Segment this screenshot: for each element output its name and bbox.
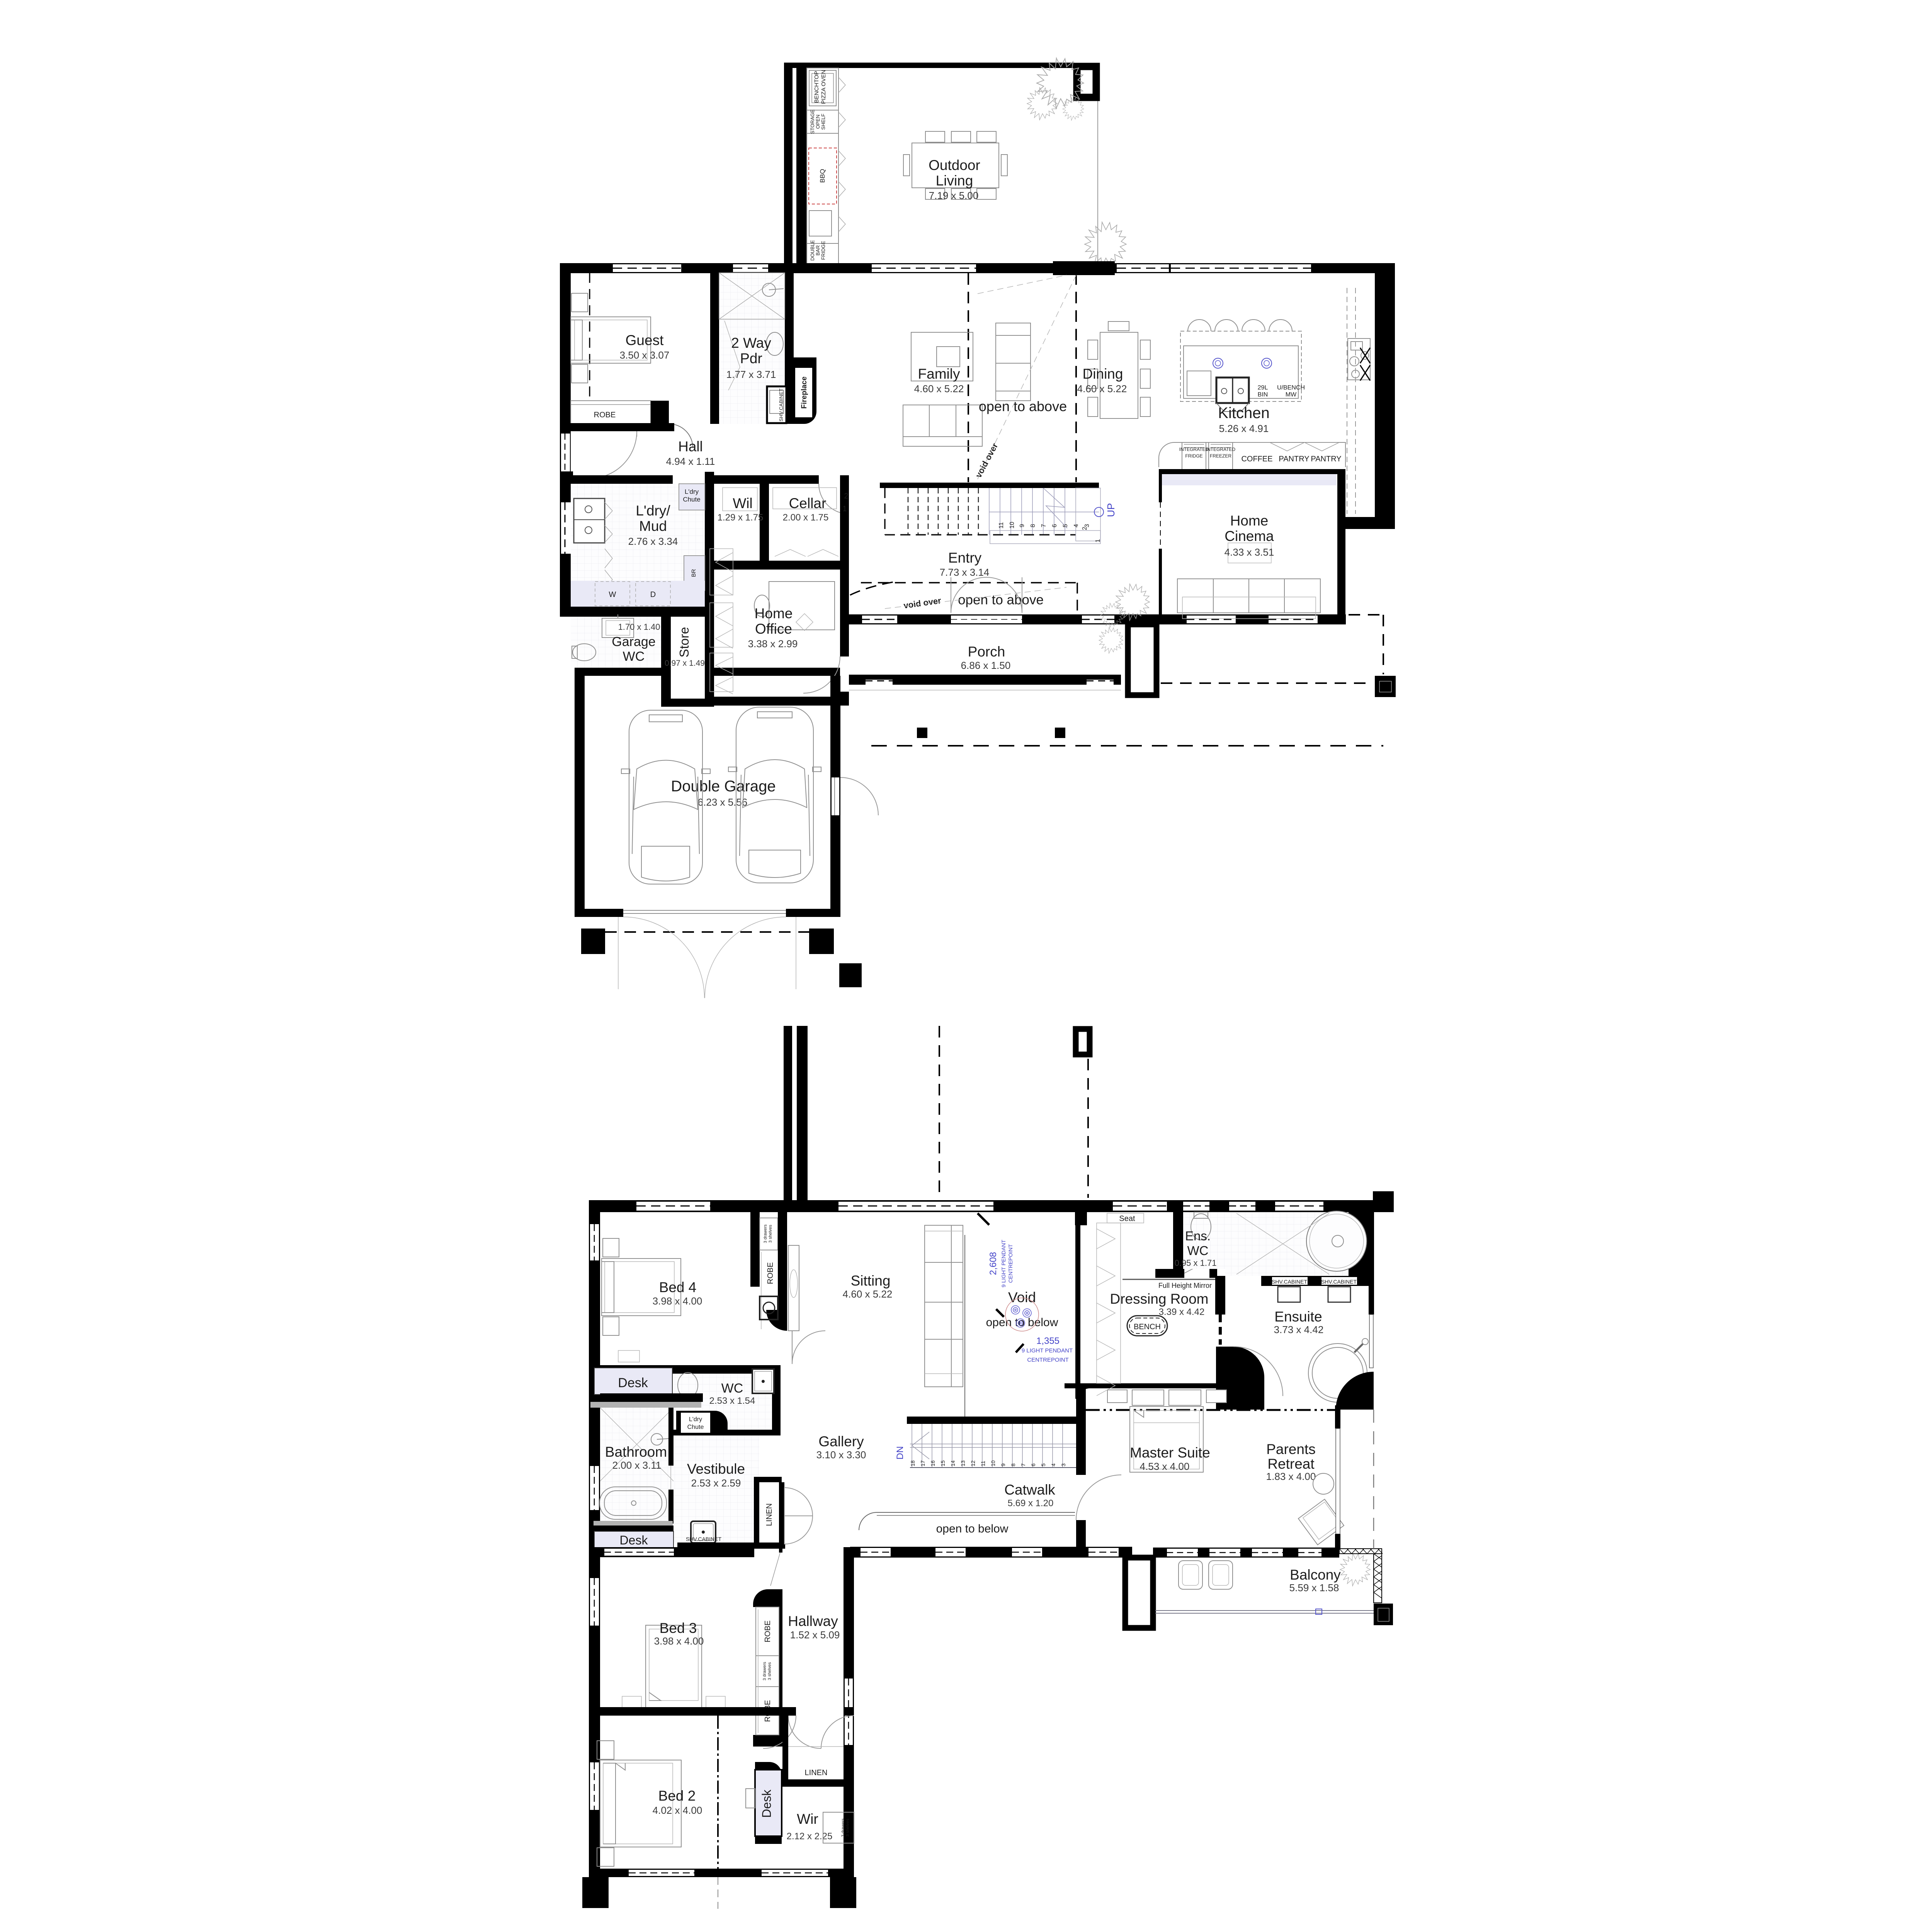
svg-text:Cinema: Cinema [1225, 528, 1274, 544]
svg-text:9: 9 [1019, 524, 1026, 527]
svg-text:2.00 x 3.11: 2.00 x 3.11 [612, 1459, 662, 1471]
svg-text:open to above: open to above [979, 398, 1067, 414]
svg-text:10: 10 [990, 1460, 996, 1466]
svg-text:12: 12 [970, 1460, 976, 1466]
svg-text:4.33 x 3.51: 4.33 x 3.51 [1225, 546, 1274, 558]
svg-text:Cellar: Cellar [789, 495, 827, 511]
svg-text:FRIDGE: FRIDGE [820, 241, 826, 260]
svg-text:1.29 x 1.75: 1.29 x 1.75 [718, 512, 764, 523]
svg-text:13: 13 [960, 1460, 966, 1466]
svg-text:INTEGRATED: INTEGRATED [1179, 447, 1209, 452]
svg-text:Pdr: Pdr [740, 350, 762, 366]
svg-text:Full Height Mirror: Full Height Mirror [1158, 1282, 1212, 1289]
svg-text:7.19 x 5.00: 7.19 x 5.00 [929, 190, 979, 201]
svg-text:Office: Office [755, 621, 792, 637]
svg-text:15: 15 [940, 1460, 946, 1466]
svg-text:0.97 x 1.49: 0.97 x 1.49 [665, 659, 705, 668]
svg-text:6: 6 [1051, 524, 1058, 527]
svg-text:9 LIGHT PENDANT: 9 LIGHT PENDANT [1000, 1240, 1007, 1287]
svg-text:BAR: BAR [815, 245, 821, 256]
svg-text:4.53 x 4.00: 4.53 x 4.00 [1140, 1461, 1190, 1472]
svg-text:Wir: Wir [797, 1811, 818, 1827]
svg-text:Dining: Dining [1083, 366, 1123, 382]
svg-text:4.94 x 1.11: 4.94 x 1.11 [666, 456, 715, 467]
svg-text:WC: WC [623, 649, 645, 664]
svg-text:Store: Store [677, 627, 691, 658]
svg-text:Guest: Guest [626, 332, 664, 348]
svg-text:16: 16 [930, 1460, 936, 1466]
svg-text:Family: Family [918, 366, 960, 382]
svg-text:SHV.CABINET: SHV.CABINET [778, 388, 784, 422]
svg-text:4: 4 [1073, 524, 1080, 527]
svg-text:4.60 x 5.22: 4.60 x 5.22 [1077, 383, 1127, 395]
svg-text:5.59 x 1.58: 5.59 x 1.58 [1289, 1582, 1339, 1594]
svg-text:7: 7 [1041, 524, 1047, 527]
svg-text:3.98 x 4.00: 3.98 x 4.00 [654, 1635, 704, 1647]
svg-text:MW: MW [1286, 391, 1297, 398]
svg-text:LINEN: LINEN [805, 1769, 828, 1777]
svg-text:Kitchen: Kitchen [1218, 405, 1269, 422]
svg-text:ROBE: ROBE [594, 411, 616, 419]
svg-text:9: 9 [1000, 1463, 1006, 1466]
svg-text:1.70 x 1.40: 1.70 x 1.40 [618, 622, 660, 632]
svg-text:Living: Living [936, 173, 973, 189]
svg-text:5: 5 [1040, 1463, 1046, 1466]
svg-text:7: 7 [1020, 1463, 1026, 1466]
svg-text:1,355: 1,355 [1036, 1336, 1060, 1346]
svg-text:1: 1 [1095, 539, 1101, 543]
svg-text:SHV.CABINET: SHV.CABINET [1321, 1279, 1357, 1285]
svg-text:LINEN: LINEN [765, 1503, 774, 1526]
svg-text:CENTREPOINT: CENTREPOINT [1027, 1357, 1069, 1363]
svg-text:SHV.CABINET: SHV.CABINET [686, 1536, 722, 1542]
svg-text:Desk: Desk [618, 1376, 648, 1390]
svg-text:SHV.CABINET: SHV.CABINET [1272, 1279, 1308, 1285]
svg-text:3 drawers: 3 drawers [762, 1662, 767, 1680]
svg-text:Parents: Parents [1266, 1441, 1316, 1457]
svg-text:3.10 x 3.30: 3.10 x 3.30 [816, 1449, 866, 1461]
svg-text:3.50 x 3.07: 3.50 x 3.07 [620, 349, 670, 361]
svg-text:2.76 x 3.34: 2.76 x 3.34 [628, 536, 678, 547]
svg-text:5.69 x 1.20: 5.69 x 1.20 [1008, 1498, 1054, 1509]
svg-text:Double Garage: Double Garage [671, 778, 776, 795]
svg-text:1.83 x 4.00: 1.83 x 4.00 [1266, 1471, 1316, 1482]
svg-text:7.73 x 3.14: 7.73 x 3.14 [940, 566, 990, 578]
svg-text:4.60 x 5.22: 4.60 x 5.22 [914, 383, 964, 395]
svg-text:Outdoor: Outdoor [929, 157, 980, 173]
svg-text:CENTREPOINT: CENTREPOINT [1007, 1244, 1014, 1283]
svg-text:2 Way: 2 Way [731, 335, 771, 351]
svg-text:Chute: Chute [683, 496, 700, 503]
svg-text:4.02 x 4.00: 4.02 x 4.00 [653, 1804, 702, 1816]
svg-text:Ens.: Ens. [1185, 1229, 1211, 1243]
svg-text:Entry: Entry [948, 550, 982, 566]
svg-text:Bed 4: Bed 4 [659, 1279, 697, 1295]
svg-text:Fireplace: Fireplace [800, 376, 808, 408]
svg-text:Mud: Mud [639, 518, 667, 534]
svg-text:2: 2 [1082, 527, 1088, 530]
svg-text:Vestibule: Vestibule [687, 1461, 745, 1477]
svg-text:2.53 x 2.59: 2.53 x 2.59 [691, 1477, 741, 1489]
svg-text:Catwalk: Catwalk [1004, 1482, 1055, 1498]
svg-text:1: 1 [842, 505, 847, 513]
svg-text:PANTRY: PANTRY [1279, 455, 1309, 463]
svg-text:Balcony: Balcony [1290, 1567, 1341, 1583]
svg-text:18: 18 [910, 1460, 916, 1466]
svg-text:Desk: Desk [760, 1789, 774, 1818]
svg-text:L'dry/: L'dry/ [636, 503, 670, 519]
svg-text:WC: WC [721, 1381, 743, 1396]
svg-text:5: 5 [1062, 524, 1069, 527]
svg-text:BR: BR [690, 569, 697, 577]
svg-text:14: 14 [950, 1460, 956, 1466]
svg-text:11: 11 [980, 1461, 986, 1466]
svg-text:DN: DN [895, 1446, 905, 1460]
svg-text:L'dry: L'dry [685, 488, 699, 495]
svg-text:Gallery: Gallery [818, 1434, 864, 1449]
svg-text:ROBE: ROBE [764, 1621, 772, 1643]
svg-text:U/BENCH: U/BENCH [1277, 384, 1305, 391]
svg-text:Hall: Hall [678, 439, 703, 454]
svg-text:3.73 x 4.42: 3.73 x 4.42 [1274, 1324, 1324, 1335]
svg-text:Bathroom: Bathroom [605, 1444, 667, 1460]
svg-text:FRIDGE: FRIDGE [1185, 453, 1202, 459]
svg-text:Dressing Room: Dressing Room [1110, 1291, 1209, 1307]
svg-text:ROBE: ROBE [766, 1262, 775, 1284]
svg-text:6: 6 [1030, 1463, 1036, 1466]
svg-text:3 drawers: 3 drawers [763, 1224, 768, 1243]
svg-text:BBQ: BBQ [819, 169, 826, 183]
svg-text:UP: UP [1105, 503, 1117, 517]
svg-text:WC: WC [1187, 1243, 1209, 1258]
svg-text:0.95 x 1.71: 0.95 x 1.71 [1175, 1258, 1217, 1268]
svg-text:2.12 x 2.25: 2.12 x 2.25 [787, 1831, 833, 1842]
svg-text:BIN: BIN [1258, 391, 1268, 398]
svg-text:2.00 x 1.75: 2.00 x 1.75 [783, 512, 829, 523]
svg-text:4: 4 [1050, 1463, 1056, 1466]
svg-text:4.60 x 5.22: 4.60 x 5.22 [843, 1288, 893, 1300]
svg-text:3.38 x 2.99: 3.38 x 2.99 [748, 638, 798, 650]
svg-text:3.98 x 4.00: 3.98 x 4.00 [653, 1295, 702, 1307]
svg-text:STORAGE: STORAGE [810, 109, 815, 134]
svg-text:PANTRY: PANTRY [1311, 455, 1341, 463]
svg-text:3 drawers: 3 drawers [841, 1818, 845, 1837]
svg-text:Garage: Garage [612, 634, 655, 649]
svg-text:3 shelves: 3 shelves [767, 1662, 772, 1680]
svg-text:Bed 3: Bed 3 [660, 1620, 697, 1636]
svg-text:Hallway: Hallway [788, 1613, 838, 1629]
svg-text:3 shelves: 3 shelves [845, 1818, 850, 1837]
svg-text:6.86 x 1.50: 6.86 x 1.50 [961, 660, 1011, 671]
svg-text:Desk: Desk [620, 1533, 648, 1547]
svg-text:11: 11 [998, 522, 1005, 529]
svg-text:2: 2 [844, 492, 848, 500]
svg-text:3 shelves: 3 shelves [768, 1225, 773, 1243]
svg-text:Retreat: Retreat [1267, 1456, 1315, 1472]
svg-text:SHELF: SHELF [820, 114, 826, 130]
svg-text:DOUBLE: DOUBLE [810, 240, 815, 261]
svg-text:Void: Void [1008, 1289, 1036, 1305]
svg-text:Sitting: Sitting [851, 1273, 891, 1289]
svg-text:OPEN: OPEN [815, 115, 821, 129]
svg-text:INTEGRATED: INTEGRATED [1206, 447, 1236, 452]
svg-text:2,608: 2,608 [988, 1252, 998, 1275]
svg-text:COFFEE: COFFEE [1241, 455, 1272, 463]
svg-text:Wil: Wil [733, 495, 752, 511]
svg-text:Master Suite: Master Suite [1130, 1445, 1210, 1461]
svg-text:17: 17 [920, 1460, 926, 1466]
svg-text:3.39 x 4.42: 3.39 x 4.42 [1159, 1307, 1205, 1317]
svg-text:Chute: Chute [687, 1424, 704, 1430]
svg-text:FREEZER: FREEZER [1210, 453, 1231, 459]
svg-text:8: 8 [1030, 524, 1036, 527]
svg-text:Seat: Seat [1119, 1214, 1135, 1223]
svg-text:5.26 x 4.91: 5.26 x 4.91 [1219, 423, 1269, 434]
svg-text:29L: 29L [1258, 384, 1268, 391]
svg-text:open to above: open to above [958, 592, 1044, 607]
svg-text:Bed 2: Bed 2 [658, 1788, 696, 1804]
svg-text:2.53 x 1.54: 2.53 x 1.54 [709, 1396, 755, 1406]
svg-text:1.52 x 5.09: 1.52 x 5.09 [790, 1629, 840, 1641]
svg-text:10: 10 [1009, 522, 1015, 529]
svg-text:Home: Home [1230, 513, 1269, 529]
svg-text:open to below: open to below [936, 1522, 1009, 1535]
svg-text:Porch: Porch [968, 644, 1005, 660]
svg-text:BENCH: BENCH [1134, 1323, 1161, 1331]
svg-text:1.77 x 3.71: 1.77 x 3.71 [726, 369, 776, 380]
svg-text:W: W [609, 590, 616, 599]
svg-text:Home: Home [755, 605, 793, 621]
svg-text:L'dry: L'dry [689, 1416, 702, 1423]
svg-text:9 LIGHT PENDANT: 9 LIGHT PENDANT [1022, 1347, 1073, 1354]
svg-text:6.23 x 5.56: 6.23 x 5.56 [698, 796, 748, 808]
svg-text:D: D [650, 590, 656, 599]
svg-text:Ensuite: Ensuite [1274, 1309, 1322, 1325]
svg-text:8: 8 [1010, 1463, 1016, 1466]
svg-text:PIZZA OVEN: PIZZA OVEN [820, 70, 827, 104]
svg-text:BENCHTOP: BENCHTOP [813, 71, 820, 103]
svg-text:3: 3 [1060, 1463, 1066, 1466]
